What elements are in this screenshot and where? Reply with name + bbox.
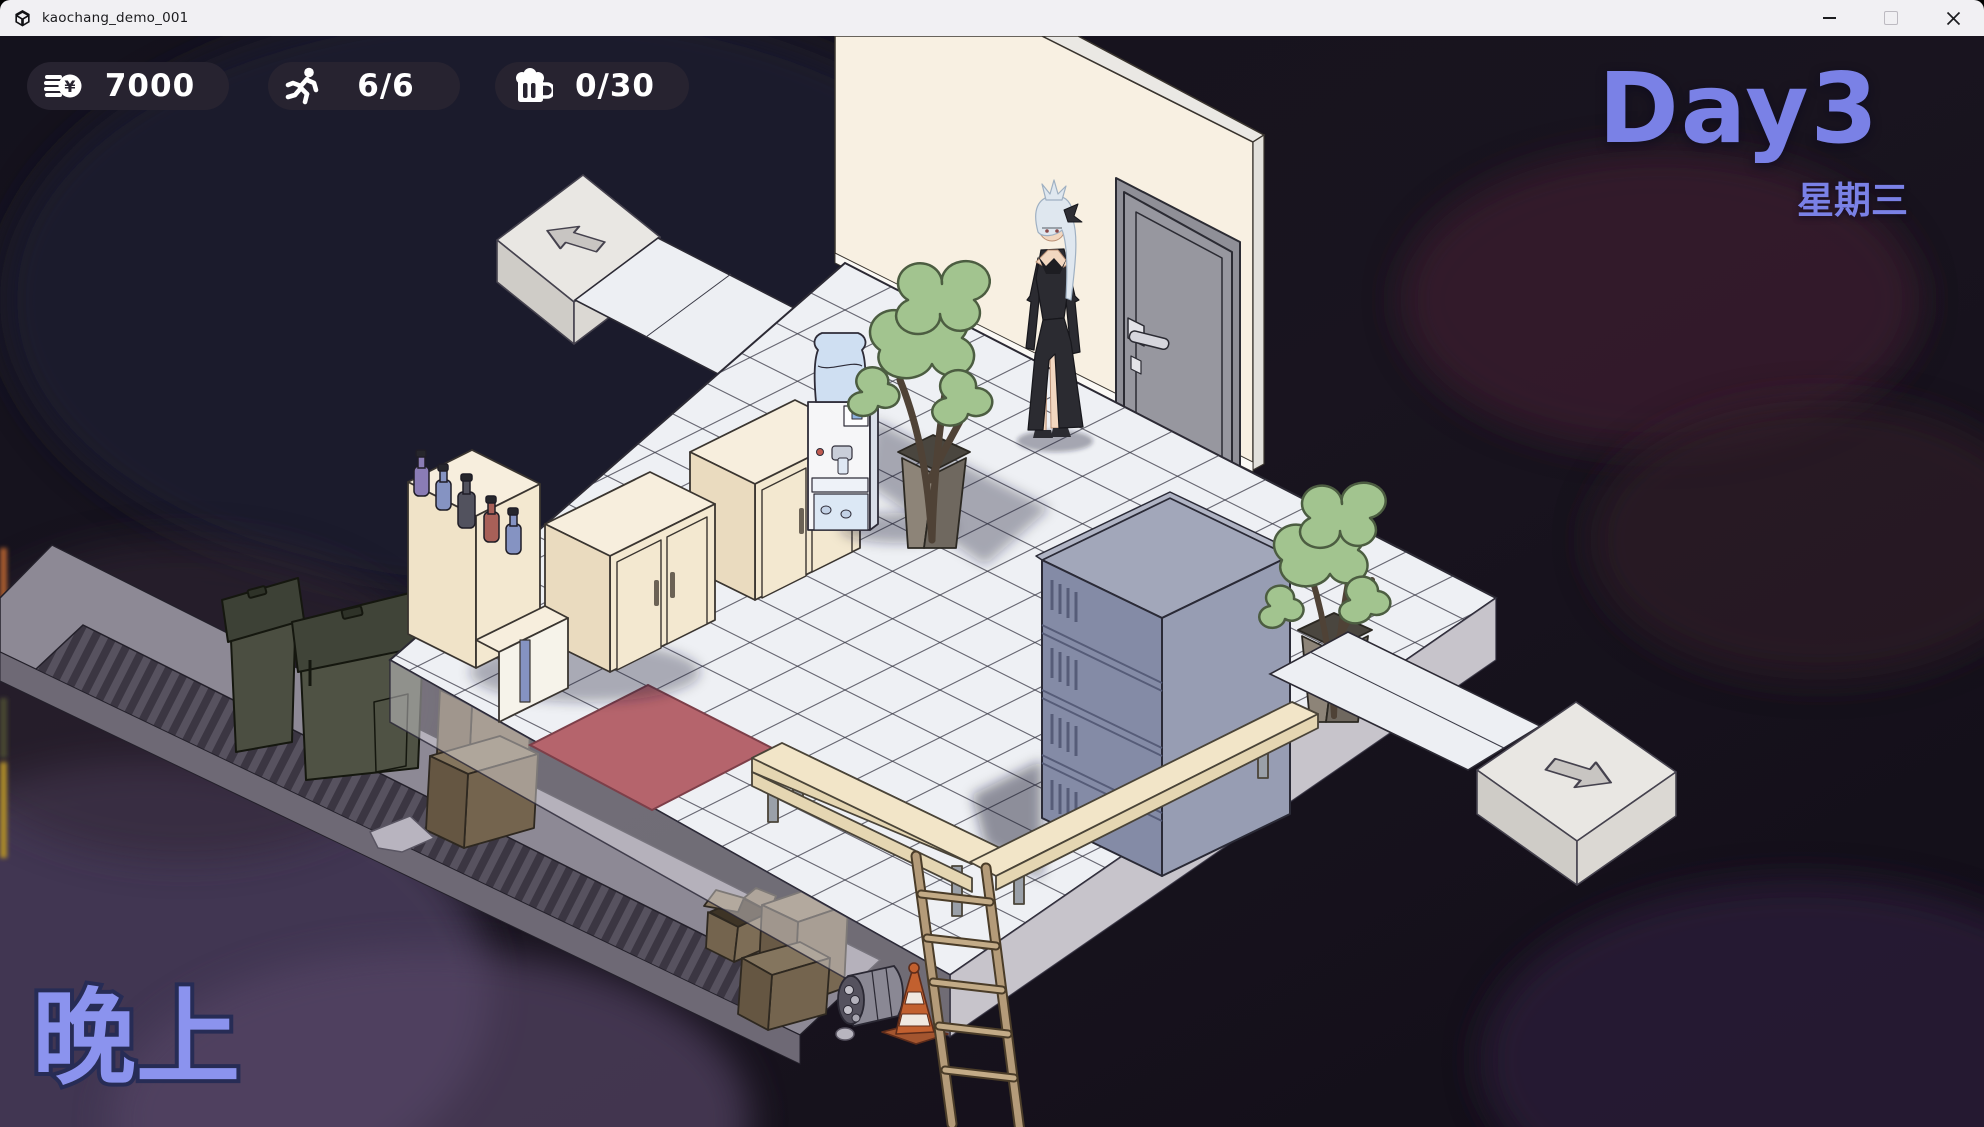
- money-value: 7000: [91, 68, 221, 104]
- money-counter: ¥ 7000: [27, 62, 229, 110]
- stone: [836, 1028, 854, 1040]
- yen-coins-icon: ¥: [43, 68, 83, 104]
- beer-value: 0/30: [561, 68, 681, 104]
- weekday-label: 星期三: [1797, 170, 1908, 224]
- minimize-button[interactable]: [1798, 0, 1860, 36]
- time-of-day-label: 晚上: [22, 952, 342, 1116]
- day-label: Day3: [1598, 52, 1880, 165]
- svg-text:¥: ¥: [64, 77, 75, 96]
- window-titlebar[interactable]: kaochang_demo_001: [0, 0, 1984, 36]
- stamina-value: 6/6: [343, 68, 440, 104]
- time-of-day-text: 晚上: [32, 977, 240, 1099]
- maximize-button[interactable]: [1860, 0, 1922, 36]
- stamina-counter: 6/6: [268, 62, 460, 110]
- minimize-icon: [1823, 17, 1836, 19]
- beer-mug-icon: [511, 67, 553, 105]
- runner-icon: [284, 67, 324, 105]
- close-icon: [1946, 11, 1961, 26]
- beer-counter: 0/30: [495, 62, 689, 110]
- maximize-icon: [1884, 11, 1898, 25]
- game-window: ¥ 7000 6/6: [0, 0, 1984, 1127]
- window-title: kaochang_demo_001: [42, 10, 188, 26]
- close-button[interactable]: [1922, 0, 1984, 36]
- unity-logo-icon: [13, 9, 32, 28]
